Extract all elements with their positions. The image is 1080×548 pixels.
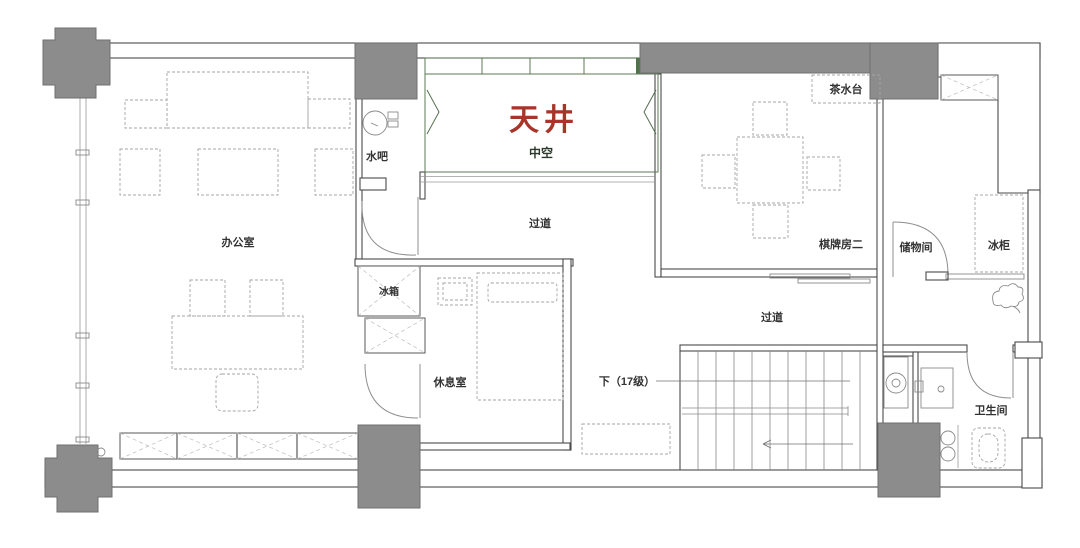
- label-tea-station: 茶水台: [829, 82, 863, 96]
- waterbar-sink: [363, 111, 398, 135]
- bathroom-door: [967, 352, 1013, 398]
- restroom-top-wall: [355, 259, 573, 266]
- column-top-right: [870, 43, 938, 99]
- column-top-left: [43, 28, 110, 98]
- right-wall: [1028, 190, 1040, 472]
- column-bathroom: [878, 423, 940, 497]
- window-mullion-ticks: [76, 93, 89, 442]
- fixtures: [97, 111, 1023, 461]
- double-basin: [941, 431, 955, 461]
- stair-handrail: [682, 406, 848, 416]
- restroom-door: [365, 364, 420, 418]
- atrium-right-chevron: [644, 90, 656, 134]
- waterbar-counter: [360, 178, 386, 190]
- label-chess-room: 棋牌房二: [818, 237, 863, 251]
- freezer-sliding-door: [926, 272, 1024, 280]
- restroom-right-wall: [563, 259, 571, 450]
- corner-wall-block: [1022, 438, 1042, 488]
- label-fridge: 冰箱: [379, 285, 399, 298]
- room-labels: 办公室 水吧 过道 茶水台 棋牌房二 储物间 冰柜 冰箱 休息室 过道 下（17…: [222, 82, 1011, 417]
- plant-squiggle: [993, 284, 1024, 313]
- label-storage-room: 储物间: [900, 240, 933, 254]
- label-rest-room: 休息室: [433, 375, 467, 389]
- label-freezer: 冰柜: [988, 238, 1010, 252]
- restroom-bottom-wall: [420, 443, 570, 450]
- wardrobe-cabinet: [365, 318, 425, 353]
- label-atrium-sub: 中空: [529, 145, 553, 160]
- corridor-door: [362, 197, 418, 255]
- label-office: 办公室: [222, 235, 255, 249]
- label-atrium: 天井: [509, 104, 579, 137]
- label-water-bar: 水吧: [366, 149, 388, 163]
- office-bench-cabinet: [120, 433, 358, 459]
- cabinet-top-right: [941, 75, 998, 100]
- column-bottom-mid: [358, 425, 420, 508]
- column-top-mid: [355, 43, 417, 99]
- bathroom-doorframe-cap: [1015, 342, 1042, 358]
- office-sofa-group: [120, 72, 353, 195]
- bathtub: [972, 428, 1005, 468]
- gray-wall-band: [640, 43, 880, 73]
- floor-plan: 办公室 水吧 过道 茶水台 棋牌房二 储物间 冰柜 冰箱 休息室 过道 下（17…: [0, 0, 1080, 548]
- chessroom-bottom-wall: [661, 269, 877, 277]
- staircase: [656, 351, 860, 470]
- toilet: [884, 357, 908, 408]
- label-corridor-upper: 过道: [529, 216, 551, 230]
- stair-risers: [698, 351, 860, 470]
- label-stairs-down: 下（17级）: [599, 374, 655, 388]
- middle-vertical-wall: [877, 99, 883, 470]
- column-bottom-left: [45, 445, 112, 512]
- label-bathroom: 卫生间: [975, 403, 1008, 417]
- bathroom-sink: [915, 368, 953, 408]
- understair-bench: [582, 424, 670, 454]
- bathroom-inner-wall: [913, 352, 918, 425]
- top-right-wall-l: [938, 43, 1040, 193]
- chess-table-group: [702, 102, 840, 238]
- office-desk-group: [172, 280, 303, 411]
- bathroom-top-wall-left: [883, 345, 967, 352]
- freezer-outline: [975, 195, 1023, 272]
- label-corridor-lower: 过道: [761, 310, 783, 324]
- atrium-top-strip: [425, 58, 658, 74]
- atrium-door-jamb: [420, 172, 425, 199]
- window-wall: [76, 93, 89, 444]
- stair-top-wall: [680, 345, 877, 351]
- stair-direction-arrow: [763, 440, 853, 448]
- atrium-left-chevron: [427, 90, 439, 134]
